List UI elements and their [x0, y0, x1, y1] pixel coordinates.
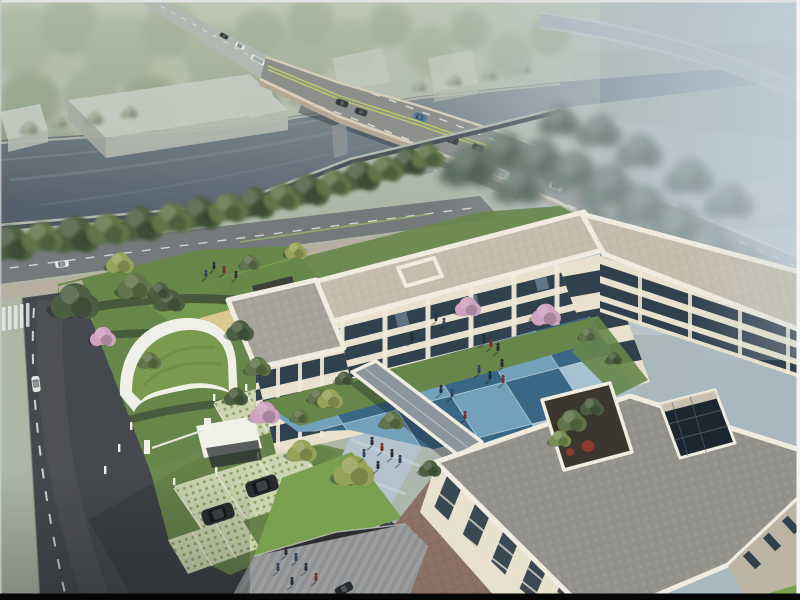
- mist-right: [690, 230, 800, 360]
- architectural-rendering-image: [0, 0, 800, 600]
- corner-shade: [0, 470, 250, 600]
- bridge-pier: [332, 122, 348, 158]
- red-shrub: [566, 448, 574, 456]
- gate-pillar: [144, 440, 150, 454]
- red-shrub: [582, 440, 594, 452]
- gate-pillar: [204, 418, 211, 434]
- rendering-canvas: [0, 0, 800, 600]
